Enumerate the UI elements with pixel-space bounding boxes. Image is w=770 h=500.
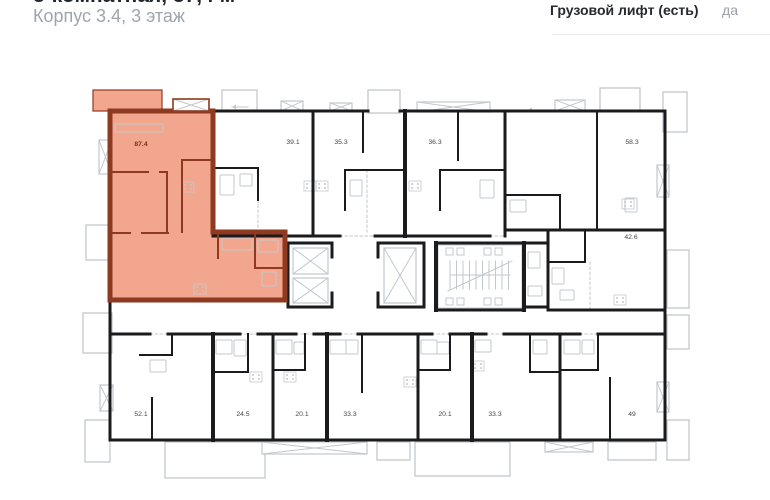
unit-area-label: 42.6 (624, 234, 637, 241)
unit-area-label: 39.1 (286, 139, 299, 146)
unit-area-label: 20.1 (438, 411, 451, 418)
unit-area-label: 87.4 (134, 141, 147, 148)
floor-plan[interactable]: 87.439.135.336.358.342.652.124.520.133.3… (0, 0, 770, 500)
highlighted-unit-area[interactable] (110, 111, 285, 300)
unit-area-label: 58.3 (625, 139, 638, 146)
floorplan-viewer: 3-комнатная, 87,4 м² Корпус 3.4, 3 этаж … (0, 0, 770, 500)
unit-area-label: 35.3 (334, 139, 347, 146)
highlight-balcony (93, 90, 162, 111)
unit-area-label: 33.3 (343, 411, 356, 418)
unit-area-label: 24.5 (236, 411, 249, 418)
unit-area-label: 33.3 (488, 411, 501, 418)
unit-area-label: 36.3 (428, 139, 441, 146)
unit-area-label: 49 (628, 411, 636, 418)
core (293, 245, 522, 308)
unit-area-label: 20.1 (295, 411, 308, 418)
unit-area-label: 52.1 (134, 411, 147, 418)
